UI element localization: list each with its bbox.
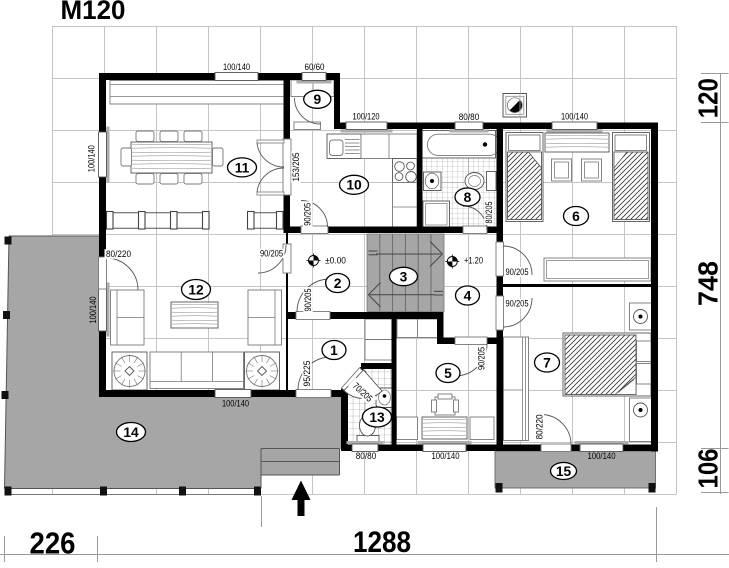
svg-text:90/205: 90/205 <box>260 249 283 260</box>
svg-text:9: 9 <box>313 92 321 107</box>
svg-text:100/140: 100/140 <box>88 297 99 324</box>
svg-text:90/205: 90/205 <box>506 298 529 309</box>
svg-text:15: 15 <box>556 464 572 479</box>
svg-text:100/120: 100/120 <box>353 112 380 123</box>
svg-text:14: 14 <box>123 425 139 440</box>
svg-text:13: 13 <box>369 410 385 425</box>
svg-text:100/140: 100/140 <box>561 112 588 123</box>
svg-text:80/220: 80/220 <box>106 249 131 260</box>
svg-text:2: 2 <box>334 276 342 291</box>
svg-text:748: 748 <box>693 261 724 306</box>
svg-text:100/140: 100/140 <box>223 62 250 73</box>
svg-text:100/140: 100/140 <box>222 399 249 410</box>
svg-text:3: 3 <box>400 269 408 284</box>
svg-text:10: 10 <box>346 178 362 193</box>
svg-text:60/60: 60/60 <box>305 62 325 73</box>
svg-text:80/220: 80/220 <box>534 414 545 439</box>
svg-text:6: 6 <box>572 209 580 224</box>
svg-text:120: 120 <box>693 78 724 118</box>
svg-text:80/205: 80/205 <box>484 202 495 224</box>
svg-text:90/205: 90/205 <box>303 289 314 312</box>
svg-text:11: 11 <box>235 160 250 175</box>
svg-text:M120: M120 <box>61 0 126 25</box>
svg-text:5: 5 <box>444 366 452 381</box>
svg-text:12: 12 <box>188 282 204 297</box>
svg-text:+1.20: +1.20 <box>464 256 483 267</box>
svg-text:95/225: 95/225 <box>302 361 313 387</box>
svg-text:226: 226 <box>30 526 76 561</box>
svg-text:1288: 1288 <box>353 526 411 559</box>
svg-text:90/205: 90/205 <box>506 267 529 278</box>
svg-text:153/205: 153/205 <box>291 153 302 182</box>
svg-text:100/140: 100/140 <box>432 451 460 462</box>
svg-text:100/140: 100/140 <box>588 451 616 462</box>
svg-text:±0.00: ±0.00 <box>325 256 346 267</box>
svg-text:90/205: 90/205 <box>477 347 488 370</box>
svg-text:80/80: 80/80 <box>356 451 377 462</box>
svg-text:100/140: 100/140 <box>87 145 98 172</box>
svg-text:106: 106 <box>693 449 724 489</box>
svg-text:4: 4 <box>464 288 472 303</box>
svg-text:80/80: 80/80 <box>459 112 480 123</box>
svg-text:7: 7 <box>543 355 551 370</box>
svg-text:1: 1 <box>330 343 338 358</box>
svg-text:8: 8 <box>464 190 472 205</box>
svg-text:90/205: 90/205 <box>303 203 314 226</box>
